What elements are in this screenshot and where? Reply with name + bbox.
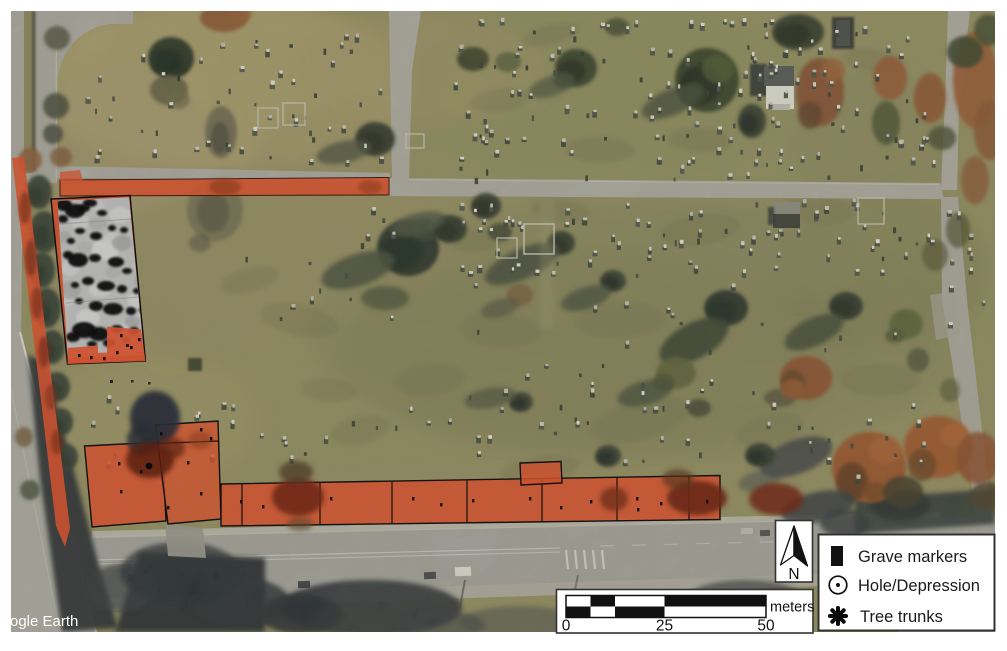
svg-text:Hole/Depression: Hole/Depression xyxy=(858,577,980,595)
svg-text:N: N xyxy=(788,566,799,583)
svg-text:50: 50 xyxy=(757,618,775,635)
svg-text:ogle Earth: ogle Earth xyxy=(10,613,78,630)
svg-text:25: 25 xyxy=(656,618,673,635)
svg-text:meters: meters xyxy=(770,600,814,616)
svg-text:Grave markers: Grave markers xyxy=(858,548,967,566)
svg-text:0: 0 xyxy=(562,618,571,635)
svg-text:Tree trunks: Tree trunks xyxy=(860,608,943,626)
